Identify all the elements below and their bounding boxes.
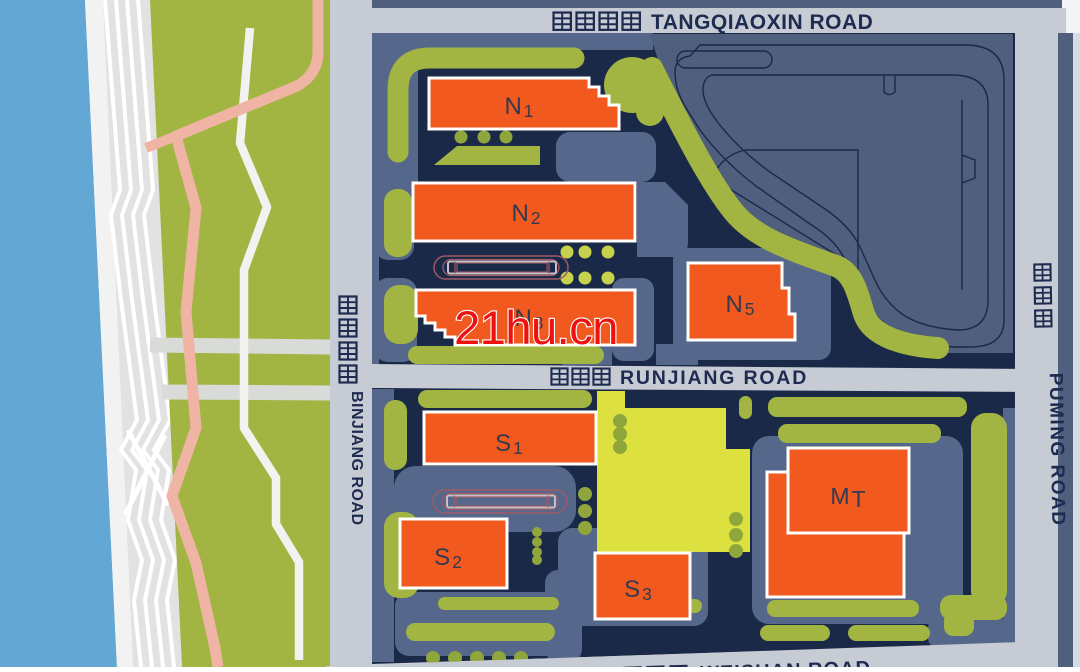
svg-text:PUMING ROAD: PUMING ROAD [1045, 373, 1069, 527]
svg-text:RUNJIANG ROAD: RUNJIANG ROAD [620, 367, 808, 389]
svg-text:21hu.cn: 21hu.cn [454, 301, 618, 354]
svg-text:TANGQIAOXIN ROAD: TANGQIAOXIN ROAD [651, 11, 873, 34]
svg-text:BINJIANG ROAD: BINJIANG ROAD [348, 391, 365, 526]
svg-text:MT: MT [830, 483, 867, 512]
